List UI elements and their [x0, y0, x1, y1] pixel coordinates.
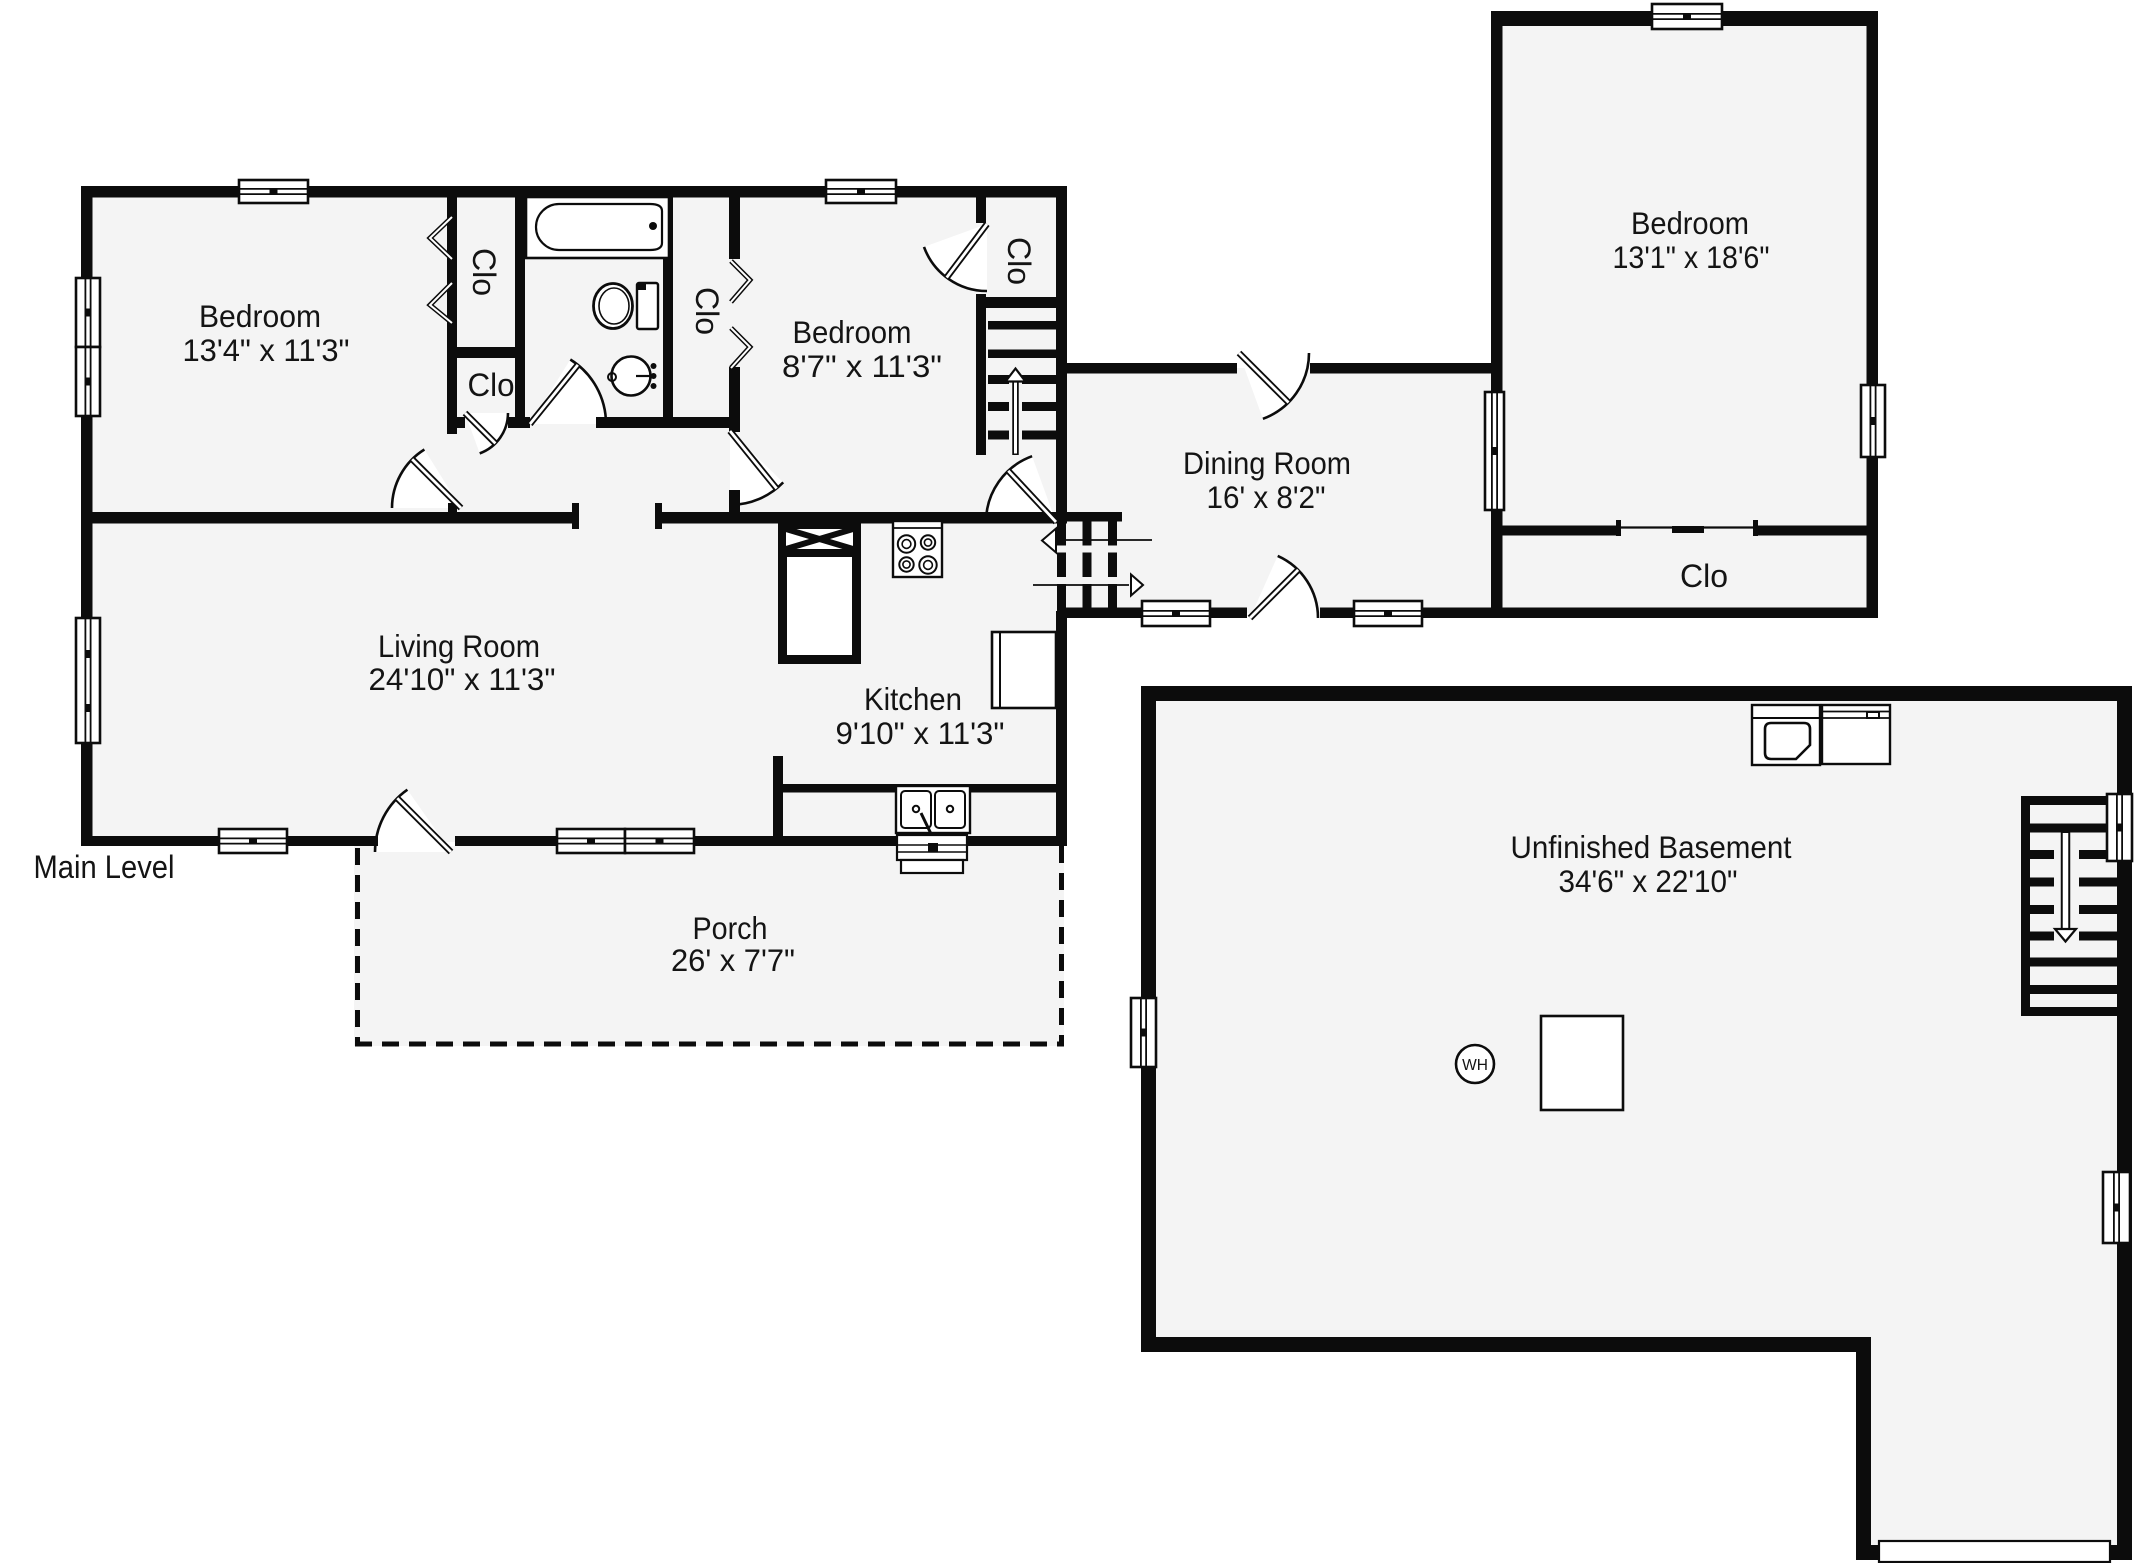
- svg-text:Bedroom: Bedroom: [793, 314, 912, 350]
- svg-text:16' x 8'2": 16' x 8'2": [1207, 479, 1326, 515]
- svg-text:Bedroom: Bedroom: [1631, 205, 1749, 241]
- svg-text:8'7" x 11'3": 8'7" x 11'3": [782, 348, 942, 384]
- svg-text:Dining Room: Dining Room: [1183, 445, 1351, 481]
- svg-text:Unfinished Basement: Unfinished Basement: [1511, 829, 1792, 865]
- svg-text:Clo: Clo: [689, 287, 725, 335]
- svg-text:26' x 7'7": 26' x 7'7": [671, 942, 795, 978]
- svg-text:13'4" x 11'3": 13'4" x 11'3": [183, 332, 350, 368]
- svg-text:Bedroom: Bedroom: [199, 298, 321, 334]
- svg-text:WH: WH: [1462, 1057, 1488, 1074]
- svg-text:Clo: Clo: [466, 248, 502, 296]
- svg-text:Clo: Clo: [468, 367, 515, 403]
- svg-text:Main Level: Main Level: [34, 849, 175, 885]
- svg-text:13'1" x 18'6": 13'1" x 18'6": [1613, 239, 1770, 275]
- svg-text:34'6" x 22'10": 34'6" x 22'10": [1559, 863, 1738, 899]
- svg-text:Clo: Clo: [1680, 558, 1728, 594]
- svg-text:Clo: Clo: [1001, 237, 1037, 285]
- svg-text:Kitchen: Kitchen: [864, 681, 962, 717]
- svg-text:24'10" x 11'3": 24'10" x 11'3": [369, 661, 556, 697]
- svg-text:9'10" x 11'3": 9'10" x 11'3": [836, 715, 1005, 751]
- svg-text:Porch: Porch: [693, 910, 768, 946]
- svg-text:Living Room: Living Room: [378, 628, 540, 664]
